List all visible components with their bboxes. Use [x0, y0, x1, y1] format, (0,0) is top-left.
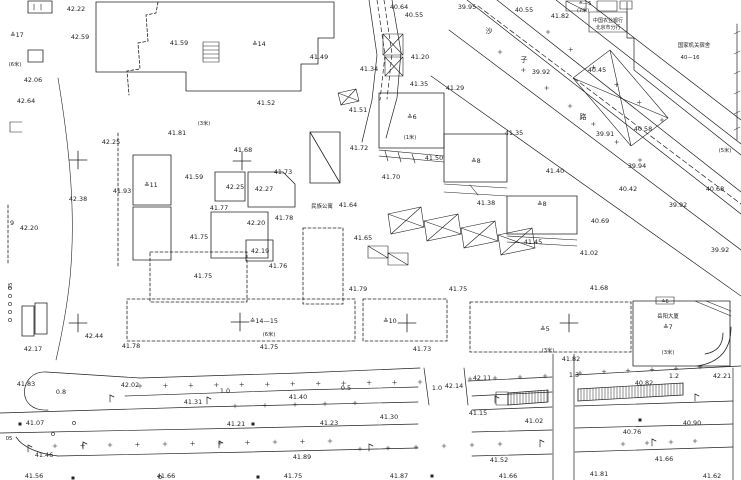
elevation-label: 41.89	[293, 453, 311, 461]
tree-tick-icon	[569, 48, 573, 52]
elevation-label: 40.58	[634, 125, 652, 133]
elevation-label: ≙8	[537, 200, 546, 208]
elevation-label: 42.25	[102, 138, 120, 146]
tree-tick-icon	[328, 439, 332, 443]
tree-tick-icon	[191, 442, 195, 446]
utility-point-icon	[8, 294, 11, 297]
survey-cross-icon	[233, 152, 251, 170]
elevation-label: (3米)	[662, 348, 675, 356]
elevation-label: 40.64	[390, 3, 408, 11]
road-b-top	[0, 401, 733, 413]
elevation-label: 1.3	[569, 371, 579, 379]
elevation-label: 41.82	[562, 355, 580, 363]
road-centerline	[377, 0, 385, 100]
tree-tick-icon	[189, 383, 193, 387]
monument-icon	[257, 476, 260, 479]
elevation-label: 41.78	[122, 342, 140, 350]
hatched-building	[310, 132, 340, 183]
survey-cross-icon	[560, 314, 578, 332]
elevation-label: 41.02	[525, 417, 543, 425]
elevation-label: 41.31	[184, 398, 202, 406]
elevation-label: 41.73	[413, 345, 431, 353]
elevation-label: 中国农业银行	[593, 17, 623, 24]
building-5-dashed	[470, 302, 631, 352]
elevation-label: 39.92	[711, 246, 729, 254]
elevation-label: 41.50	[425, 154, 443, 162]
tree-tick-icon	[293, 403, 297, 407]
elevation-label: ≙8	[471, 157, 480, 165]
elevation-label: 41.35	[505, 129, 523, 137]
boulevard-centerline	[478, 6, 741, 204]
lamp-post-icon	[695, 394, 699, 401]
elevation-label: 41.66	[499, 472, 517, 480]
tree-tick-icon	[367, 381, 371, 385]
tree-tick-icon	[323, 402, 327, 406]
tree-tick-icon	[621, 442, 625, 446]
elevation-label: 39.94	[628, 162, 646, 170]
tree-tick-icon	[498, 50, 502, 54]
monument-icon	[431, 475, 434, 478]
elevation-label: 41.15	[469, 409, 487, 417]
tree-tick-icon	[353, 401, 357, 405]
elevation-label: 42.02	[121, 381, 139, 389]
tree-tick-icon	[81, 444, 85, 448]
tree-tick-icon	[291, 382, 295, 386]
utility-point-icon	[51, 432, 54, 435]
survey-cross-icon	[231, 313, 249, 331]
elevation-label: 40—16	[680, 55, 700, 61]
elevation-label: (3米)	[198, 119, 211, 127]
elevation-label: 39.95	[458, 3, 476, 11]
elevation-label: 41.81	[168, 129, 186, 137]
building-7-arc	[697, 327, 731, 366]
tree-tick-icon	[233, 404, 237, 408]
tree-tick-icon	[591, 122, 595, 126]
corner-structure-detail	[34, 4, 41, 10]
top-structure	[597, 1, 617, 11]
elevation-label: 42.14	[445, 382, 463, 390]
tree-tick-icon	[301, 440, 305, 444]
elevation-label: 39.92	[669, 201, 687, 209]
lamp-post-icon	[495, 396, 499, 403]
elevation-label: 41.46	[35, 451, 53, 459]
elevation-label: ≙—5	[579, 0, 592, 7]
elevation-label: 41.75	[260, 343, 278, 351]
elevation-label: 1.0	[220, 387, 230, 395]
tree-tick-icon	[263, 403, 267, 407]
tree-tick-icon	[246, 441, 250, 445]
tree-tick-icon	[240, 383, 244, 387]
elevation-label: 41.83	[17, 380, 35, 388]
elevation-label: 41.68	[234, 146, 252, 154]
elevation-label: (7米)	[577, 7, 589, 14]
building-1415-dashed	[127, 299, 355, 341]
survey-cross-icon	[69, 314, 87, 332]
road-a-top	[46, 368, 420, 378]
elevation-label: 41.62	[703, 472, 721, 480]
tree-tick-icon	[358, 447, 362, 451]
monument-icon	[639, 419, 642, 422]
west-contour	[56, 78, 72, 360]
tree-tick-icon	[163, 384, 167, 388]
elevation-label: 41.07	[26, 419, 44, 427]
elevation-label: 41.59	[170, 39, 188, 47]
elevation-label: 41.40	[289, 393, 307, 401]
elevation-label: 39.91	[596, 130, 614, 138]
elevation-label: ≙6	[661, 298, 668, 305]
elevation-label: (5米)	[719, 146, 732, 154]
elevation-label: 40.42	[619, 185, 637, 193]
small-open-structure	[10, 122, 22, 132]
apartment-outline-dashed	[303, 228, 343, 304]
garage-xbox	[424, 214, 461, 241]
elevation-label: 42.11	[473, 374, 491, 382]
tree-tick-icon	[218, 441, 222, 445]
elevation-label: 41.52	[490, 456, 508, 464]
elevation-label: 40.69	[591, 217, 609, 225]
road-c-bottom	[58, 447, 733, 456]
elevation-label: 民族公寓	[311, 202, 333, 210]
elevation-label: 路	[580, 112, 587, 121]
elevation-label: (3米)	[542, 346, 555, 354]
elevation-label: 国家机关宿舍	[678, 41, 711, 49]
elevation-label: 41.38	[477, 199, 495, 207]
tree-tick-icon	[498, 442, 502, 446]
elevation-label: 41.35	[410, 80, 428, 88]
elevation-label: (6米)	[9, 60, 22, 68]
tree-tick-icon	[136, 443, 140, 447]
roads-layer	[0, 354, 741, 480]
elevation-label: ≙5	[540, 325, 549, 333]
elevation-label: ≙11	[144, 181, 158, 189]
elevation-label: ≙10	[383, 317, 397, 325]
elevation-label: 40.90	[683, 419, 701, 427]
utility-point-icon	[8, 302, 11, 305]
tree-tick-icon	[568, 104, 572, 108]
survey-map: 42.2242.59≙17(6米)42.0642.6441.59≙1441.49…	[0, 0, 741, 480]
tree-tick-icon	[386, 446, 390, 450]
building-7-hatch	[695, 301, 731, 316]
elevation-label: 42.27	[255, 185, 273, 193]
elevation-label: 41.76	[269, 262, 287, 270]
survey-map-canvas: 42.2242.59≙17(6米)42.0642.6441.59≙1441.49…	[0, 0, 741, 480]
garage-xbox	[461, 221, 498, 248]
building-8-step	[444, 184, 507, 196]
survey-cross-icon	[398, 314, 416, 332]
elevation-label: ≙14—15	[250, 317, 278, 325]
elevation-label: 42.20	[247, 219, 265, 227]
lamp-post-icon	[207, 397, 211, 404]
elevation-label: 41.66	[655, 455, 673, 463]
elevation-label: 41.75	[190, 233, 208, 241]
buildings-layer	[8, 1, 731, 366]
lamp-post-icon	[540, 440, 544, 447]
tree-tick-icon	[546, 30, 550, 34]
tree-tick-icon	[163, 442, 167, 446]
elevation-label: 42.17	[24, 345, 42, 353]
garage-step	[368, 246, 388, 258]
monument-icon	[19, 423, 22, 426]
elevation-label: 41.65	[354, 234, 372, 242]
lamp-post-icon	[219, 441, 223, 448]
utility-point-icon	[8, 318, 11, 321]
elevation-label: 岳阳大厦	[657, 312, 679, 320]
lamp-post-icon	[369, 444, 373, 451]
elevation-label: 42.59	[71, 33, 89, 41]
culdesac-arc	[24, 372, 48, 410]
tree-tick-icon	[214, 383, 218, 387]
monument-icon	[252, 423, 255, 426]
elevation-label: 75	[8, 283, 14, 290]
top-structure	[620, 1, 632, 9]
elevation-label: 41.68	[590, 284, 608, 292]
fence-band	[578, 383, 683, 401]
elevation-label: 40.45	[588, 66, 606, 74]
elevation-label: 41.72	[350, 144, 368, 152]
tree-tick-icon	[637, 100, 641, 104]
elevation-label: 41.20	[411, 53, 429, 61]
elevation-label: 41.59	[185, 173, 203, 181]
elevation-label: 42.19	[251, 247, 269, 255]
tree-tick-icon	[545, 86, 549, 90]
stairs-symbol	[203, 42, 219, 62]
shed	[22, 306, 34, 336]
elevation-label: 41.56	[25, 472, 43, 480]
elevation-label: 42.64	[17, 97, 35, 105]
elevation-label: 沙	[486, 27, 493, 35]
elevation-label: 40.68	[706, 185, 724, 193]
elevation-label: 05	[6, 436, 13, 442]
shed	[35, 303, 47, 334]
elevation-label: 42.22	[67, 5, 85, 13]
tree-tick-icon	[53, 444, 57, 448]
elevation-label: 41.64	[339, 201, 357, 209]
elevation-label: 41.30	[380, 413, 398, 421]
elevation-label: 41.49	[310, 53, 328, 61]
compound-wall-dashed	[127, 2, 158, 95]
tree-tick-icon	[468, 377, 472, 381]
elevation-label: 41.78	[275, 214, 293, 222]
road-curb	[386, 0, 401, 138]
elevation-label: 0.8	[56, 388, 66, 396]
tree-tick-icon	[393, 380, 397, 384]
tree-tick-icon	[316, 381, 320, 385]
elevation-label: 41.75	[284, 472, 302, 480]
elevation-label: (6米)	[263, 330, 276, 338]
xbox-structure	[338, 89, 359, 105]
tree-tick-icon	[615, 140, 619, 144]
elevation-label: ≙17	[10, 31, 24, 39]
elevation-label: 42.44	[85, 332, 103, 340]
elevation-label: 41.93	[113, 187, 131, 195]
elevation-label: 1.2	[669, 372, 679, 380]
elevation-label: 子	[521, 56, 528, 64]
elevation-label: 40.76	[623, 428, 641, 436]
xbox-structure	[385, 57, 403, 76]
elevation-label: ≙14	[252, 40, 266, 48]
utility-point-icon	[8, 310, 11, 313]
elevation-label: 40.55	[515, 6, 533, 14]
building-11-north	[133, 155, 171, 205]
elevation-label: 41.23	[320, 419, 338, 427]
lamp-post-icon	[110, 395, 114, 402]
elevation-label: 40.55	[405, 11, 423, 19]
garage-step	[388, 253, 408, 265]
tree-tick-icon	[693, 439, 697, 443]
elevation-label: 41.02	[580, 249, 598, 257]
survey-cross-icon	[69, 151, 87, 169]
building-10-dashed	[363, 299, 447, 341]
garage-xbox	[388, 207, 424, 234]
elevation-label: 41.29	[446, 84, 464, 92]
monument-icon	[72, 477, 75, 480]
corner-structure	[28, 1, 52, 13]
elevation-label: 41.87	[390, 472, 408, 480]
tree-tick-icon	[470, 443, 474, 447]
elevation-label: ≙7	[663, 323, 672, 331]
elevation-label: 41.51	[349, 106, 367, 114]
elevation-label: 42.20	[20, 224, 38, 232]
boulevard-edge	[556, 0, 741, 144]
elevation-label: 42.25	[226, 183, 244, 191]
elevation-label: 41.79	[349, 285, 367, 293]
tree-tick-icon	[521, 68, 525, 72]
elevation-label: 北京市分行	[595, 24, 620, 31]
road-a-bottom	[125, 387, 418, 396]
elevation-label: 41.73	[274, 168, 292, 176]
elevation-label: 41.45	[524, 238, 542, 246]
lamp-post-icon	[652, 439, 656, 446]
elevation-label: 41.40	[546, 167, 564, 175]
elevation-label: 39.92	[532, 68, 550, 76]
elevation-label: 41.21	[227, 420, 245, 428]
small-structure	[28, 50, 43, 62]
elevation-label: 41.52	[257, 99, 275, 107]
elevation-label: 42.06	[24, 76, 42, 84]
elevation-label: (1米)	[404, 133, 417, 141]
elevation-label: 0.5	[341, 384, 351, 392]
tree-tick-icon	[645, 441, 649, 445]
tree-tick-icon	[442, 444, 446, 448]
elevation-label: ≙6	[407, 113, 416, 121]
tree-tick-icon	[265, 382, 269, 386]
tree-tick-icon	[108, 443, 112, 447]
elevation-label: 41.81	[590, 470, 608, 478]
elevation-label: 41.70	[382, 173, 400, 181]
elevation-label: 41.75	[449, 285, 467, 293]
elevation-label: 1.0	[432, 384, 442, 392]
tree-tick-icon	[669, 440, 673, 444]
elevation-label: 41.82	[551, 12, 569, 20]
elevation-label: 41.34	[360, 65, 378, 73]
tree-tick-icon	[273, 440, 277, 444]
tree-tick-icon	[418, 380, 422, 384]
elevation-label: 42.38	[69, 195, 87, 203]
elevation-label: 42.21	[713, 372, 731, 380]
elevation-label: 9	[10, 219, 14, 227]
elevation-label: 41.77	[210, 204, 228, 212]
utility-point-icon	[72, 421, 75, 424]
building-7-yueyang	[633, 301, 730, 366]
building-14-outline	[96, 2, 334, 91]
elevation-label: 41.75	[194, 272, 212, 280]
hillside-xbox	[573, 50, 668, 146]
